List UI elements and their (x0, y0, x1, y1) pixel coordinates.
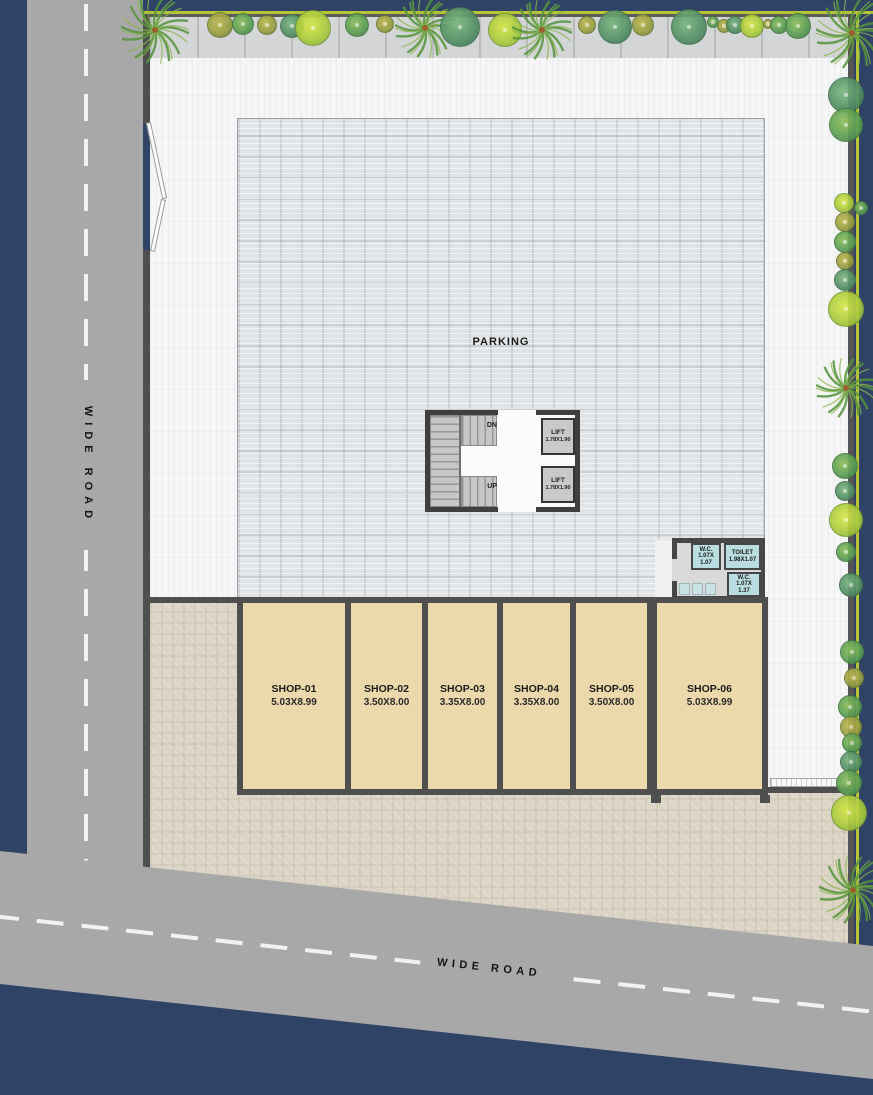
shop-04-name: SHOP-04 (514, 684, 559, 695)
toilet-dim: 1.98X1.07 (729, 557, 756, 563)
toilet-room: TOILET 1.98X1.07 (724, 543, 761, 570)
shop-03: SHOP-03 3.35X8.00 (428, 603, 497, 789)
core-opening-north (498, 410, 536, 415)
shop-04: SHOP-04 3.35X8.00 (503, 603, 570, 789)
boundary-wall-west-lower (143, 250, 150, 870)
shop-03-name: SHOP-03 (440, 684, 485, 695)
boundary-wall-west-upper (143, 14, 150, 124)
rear-step-strip (770, 778, 844, 787)
shop-02: SHOP-02 3.50X8.00 (351, 603, 422, 789)
lift-1-size: 1.78X1.90 (545, 438, 570, 444)
shop-01: SHOP-01 5.03X8.99 (243, 603, 345, 789)
paved-strip-north (150, 17, 848, 60)
stair-down-label: DN (470, 422, 497, 429)
core-opening-south (498, 507, 536, 512)
wc-east-room: W.C. 1.07X 1.37 (727, 572, 761, 597)
stair-up-label: UP (470, 483, 497, 490)
stair-divider (459, 415, 461, 507)
shop-03-size: 3.35X8.00 (440, 698, 486, 708)
shop-02-name: SHOP-02 (364, 684, 409, 695)
shop-06-name: SHOP-06 (687, 684, 732, 695)
lift-2: LIFT 1.78X1.90 (541, 466, 575, 503)
washbasin-2 (692, 583, 703, 595)
stair-upper-flight (461, 415, 497, 446)
lift-2-size: 1.78X1.90 (545, 486, 570, 492)
shop-05: SHOP-05 3.50X8.00 (576, 603, 647, 789)
boundary-wall-east (848, 14, 854, 944)
wc-north-dim2: 1.07 (700, 560, 712, 566)
boundary-line-east (856, 11, 859, 947)
boundary-wall-north (143, 14, 855, 17)
lift-1-label: LIFT (551, 430, 565, 437)
washbasin-1 (679, 583, 690, 595)
wall-southeast (765, 787, 848, 793)
shop-01-size: 5.03X8.99 (271, 698, 317, 708)
lift-1: LIFT 1.78X1.90 (541, 418, 575, 455)
shop-05-size: 3.50X8.00 (589, 698, 635, 708)
toilet-block-entry (655, 540, 672, 598)
shop-05-name: SHOP-05 (589, 684, 634, 695)
stair-lower-flight (461, 476, 497, 507)
shop-06: SHOP-06 5.03X8.99 (657, 603, 762, 789)
stair-mid-flight (430, 415, 460, 507)
road-west-label: WIDE ROAD (80, 380, 96, 550)
parking-area (237, 118, 765, 600)
shop-01-name: SHOP-01 (272, 684, 317, 695)
site-plan-canvas: PARKING DN UP LIFT 1.78X1.90 LIFT 1.78X1… (0, 0, 873, 1095)
lift-2-label: LIFT (551, 478, 565, 485)
shop-04-size: 3.35X8.00 (514, 698, 560, 708)
parking-label: PARKING (237, 336, 765, 348)
wc-north-room: W.C. 1.07X 1.07 (691, 543, 721, 570)
washbasin-3 (705, 583, 716, 595)
column-stub-right (760, 795, 770, 803)
shop-06-size: 5.03X8.99 (687, 698, 733, 708)
wc-east-dim2: 1.37 (738, 588, 750, 594)
shop-02-size: 3.50X8.00 (364, 698, 410, 708)
plot-open-space-east (768, 600, 848, 790)
toilet-door-gap (672, 559, 677, 581)
column-stub-left (651, 795, 661, 803)
compound-wall-southwest (143, 597, 243, 603)
